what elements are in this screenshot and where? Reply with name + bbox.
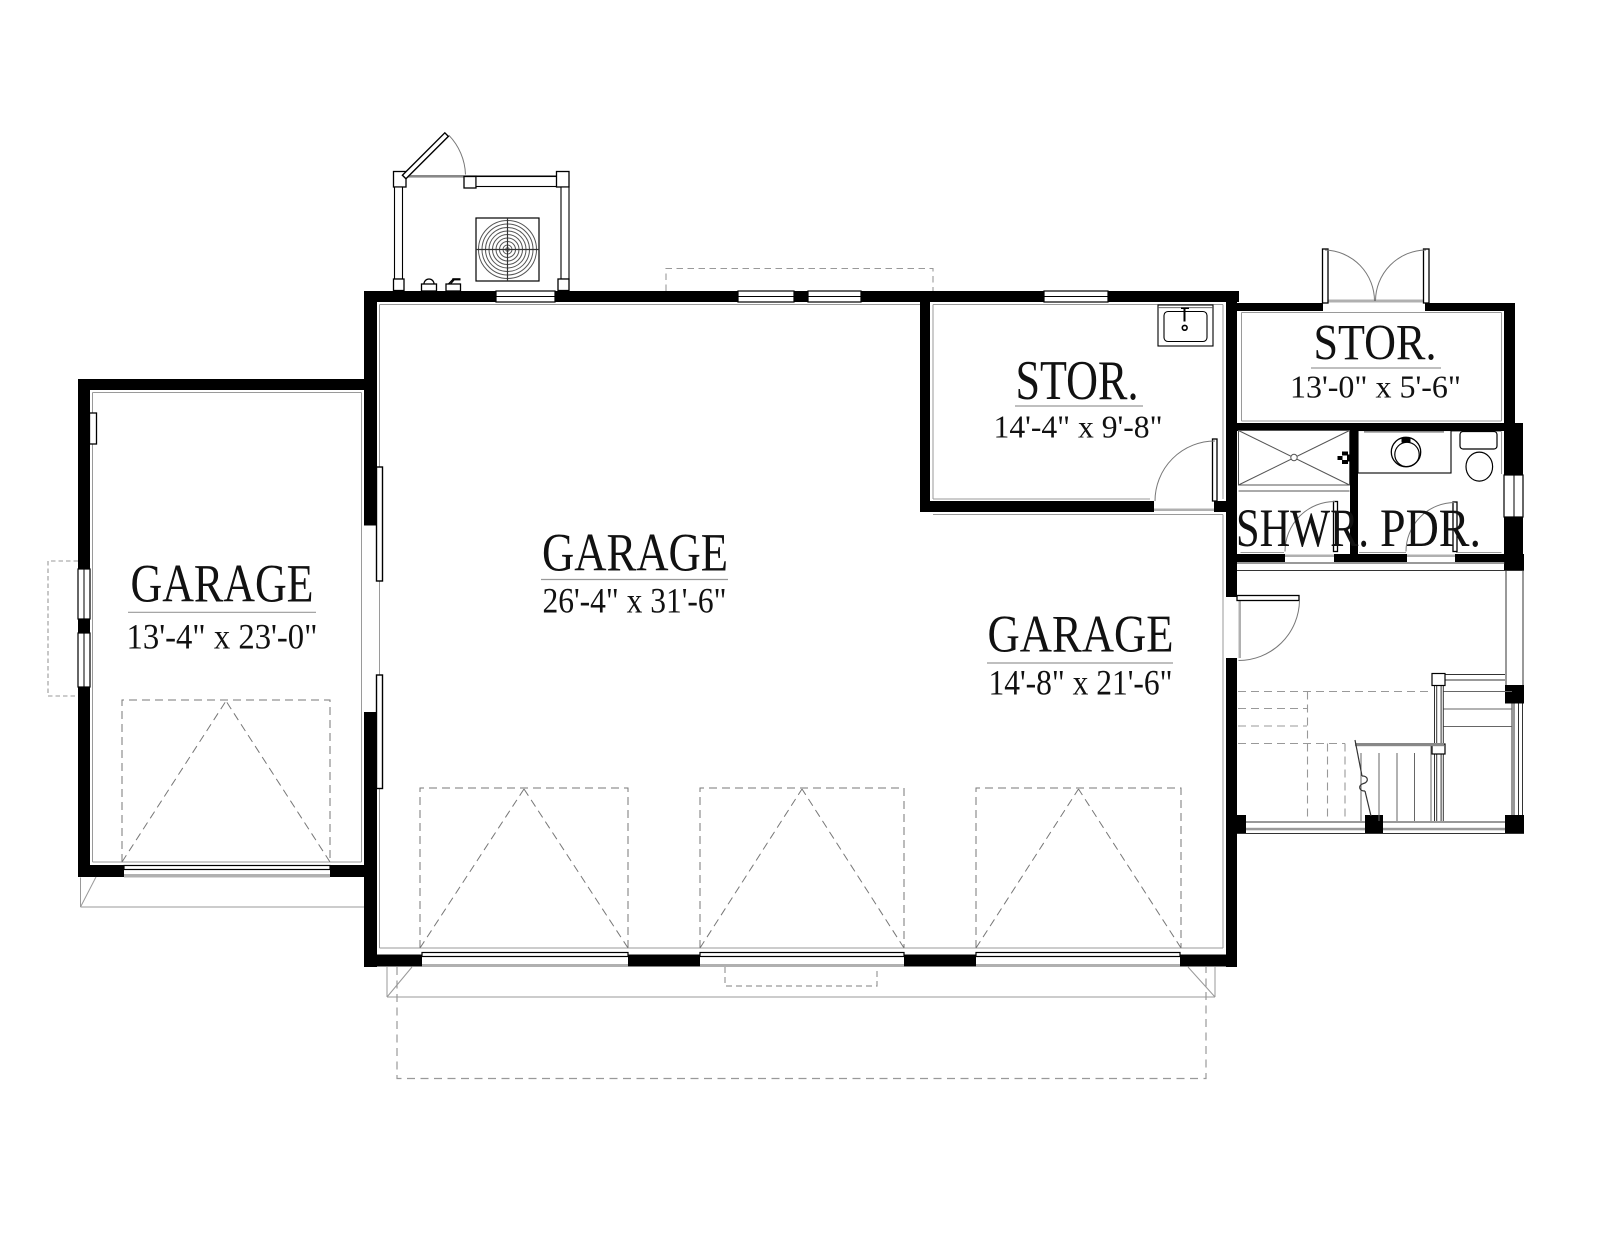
svg-text:STOR.: STOR.: [1016, 350, 1139, 412]
svg-text:14'-4" x 9'-8": 14'-4" x 9'-8": [994, 409, 1163, 445]
svg-text:STOR.: STOR.: [1314, 316, 1437, 372]
svg-text:26'-4" x 31'-6": 26'-4" x 31'-6": [543, 581, 727, 621]
svg-text:GARAGE: GARAGE: [131, 554, 314, 614]
svg-text:13'-4" x 23'-0": 13'-4" x 23'-0": [127, 617, 318, 657]
svg-text:PDR.: PDR.: [1380, 498, 1481, 558]
svg-text:13'-0" x 5'-6": 13'-0" x 5'-6": [1290, 369, 1461, 405]
svg-text:SHWR.: SHWR.: [1236, 498, 1369, 558]
svg-text:GARAGE: GARAGE: [988, 606, 1174, 664]
svg-text:GARAGE: GARAGE: [542, 523, 728, 583]
svg-text:14'-8" x 21'-6": 14'-8" x 21'-6": [989, 663, 1173, 703]
